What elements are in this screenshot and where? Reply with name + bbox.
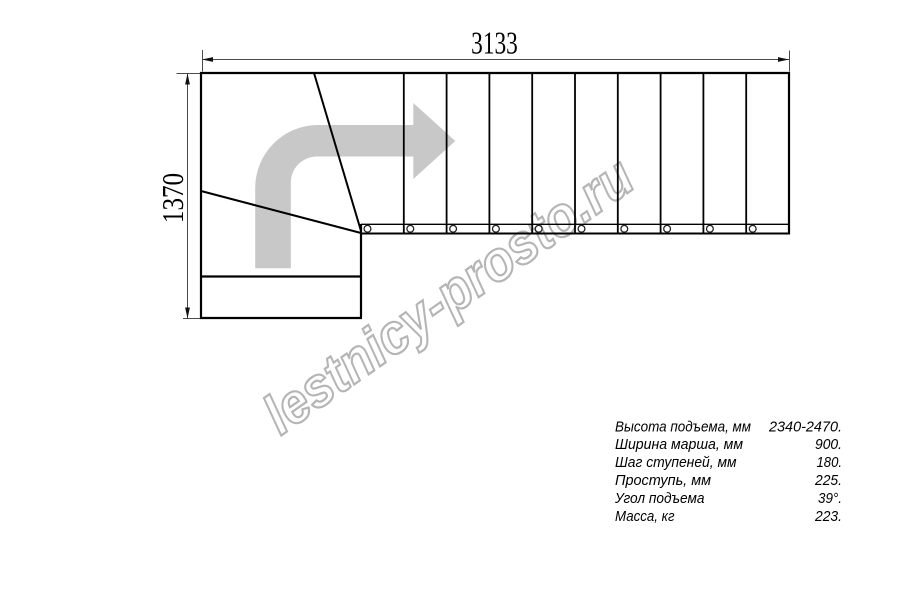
svg-text:223.: 223.: [814, 508, 842, 525]
svg-text:Ширина марша, мм: Ширина марша, мм: [615, 436, 743, 453]
svg-text:Высота подъема, мм: Высота подъема, мм: [615, 418, 751, 435]
svg-text:1370: 1370: [157, 173, 191, 223]
svg-text:180.: 180.: [817, 454, 843, 471]
svg-text:39°.: 39°.: [818, 490, 842, 507]
svg-text:225.: 225.: [814, 472, 842, 489]
svg-text:900.: 900.: [815, 436, 842, 453]
svg-text:3133: 3133: [471, 26, 518, 61]
svg-text:Проступь, мм: Проступь, мм: [615, 472, 711, 489]
svg-text:Шаг ступеней, мм: Шаг ступеней, мм: [615, 454, 737, 471]
svg-text:Масса, кг: Масса, кг: [615, 508, 675, 525]
svg-text:2340-2470.: 2340-2470.: [768, 418, 842, 435]
svg-text:Угол подъема: Угол подъема: [614, 490, 704, 507]
